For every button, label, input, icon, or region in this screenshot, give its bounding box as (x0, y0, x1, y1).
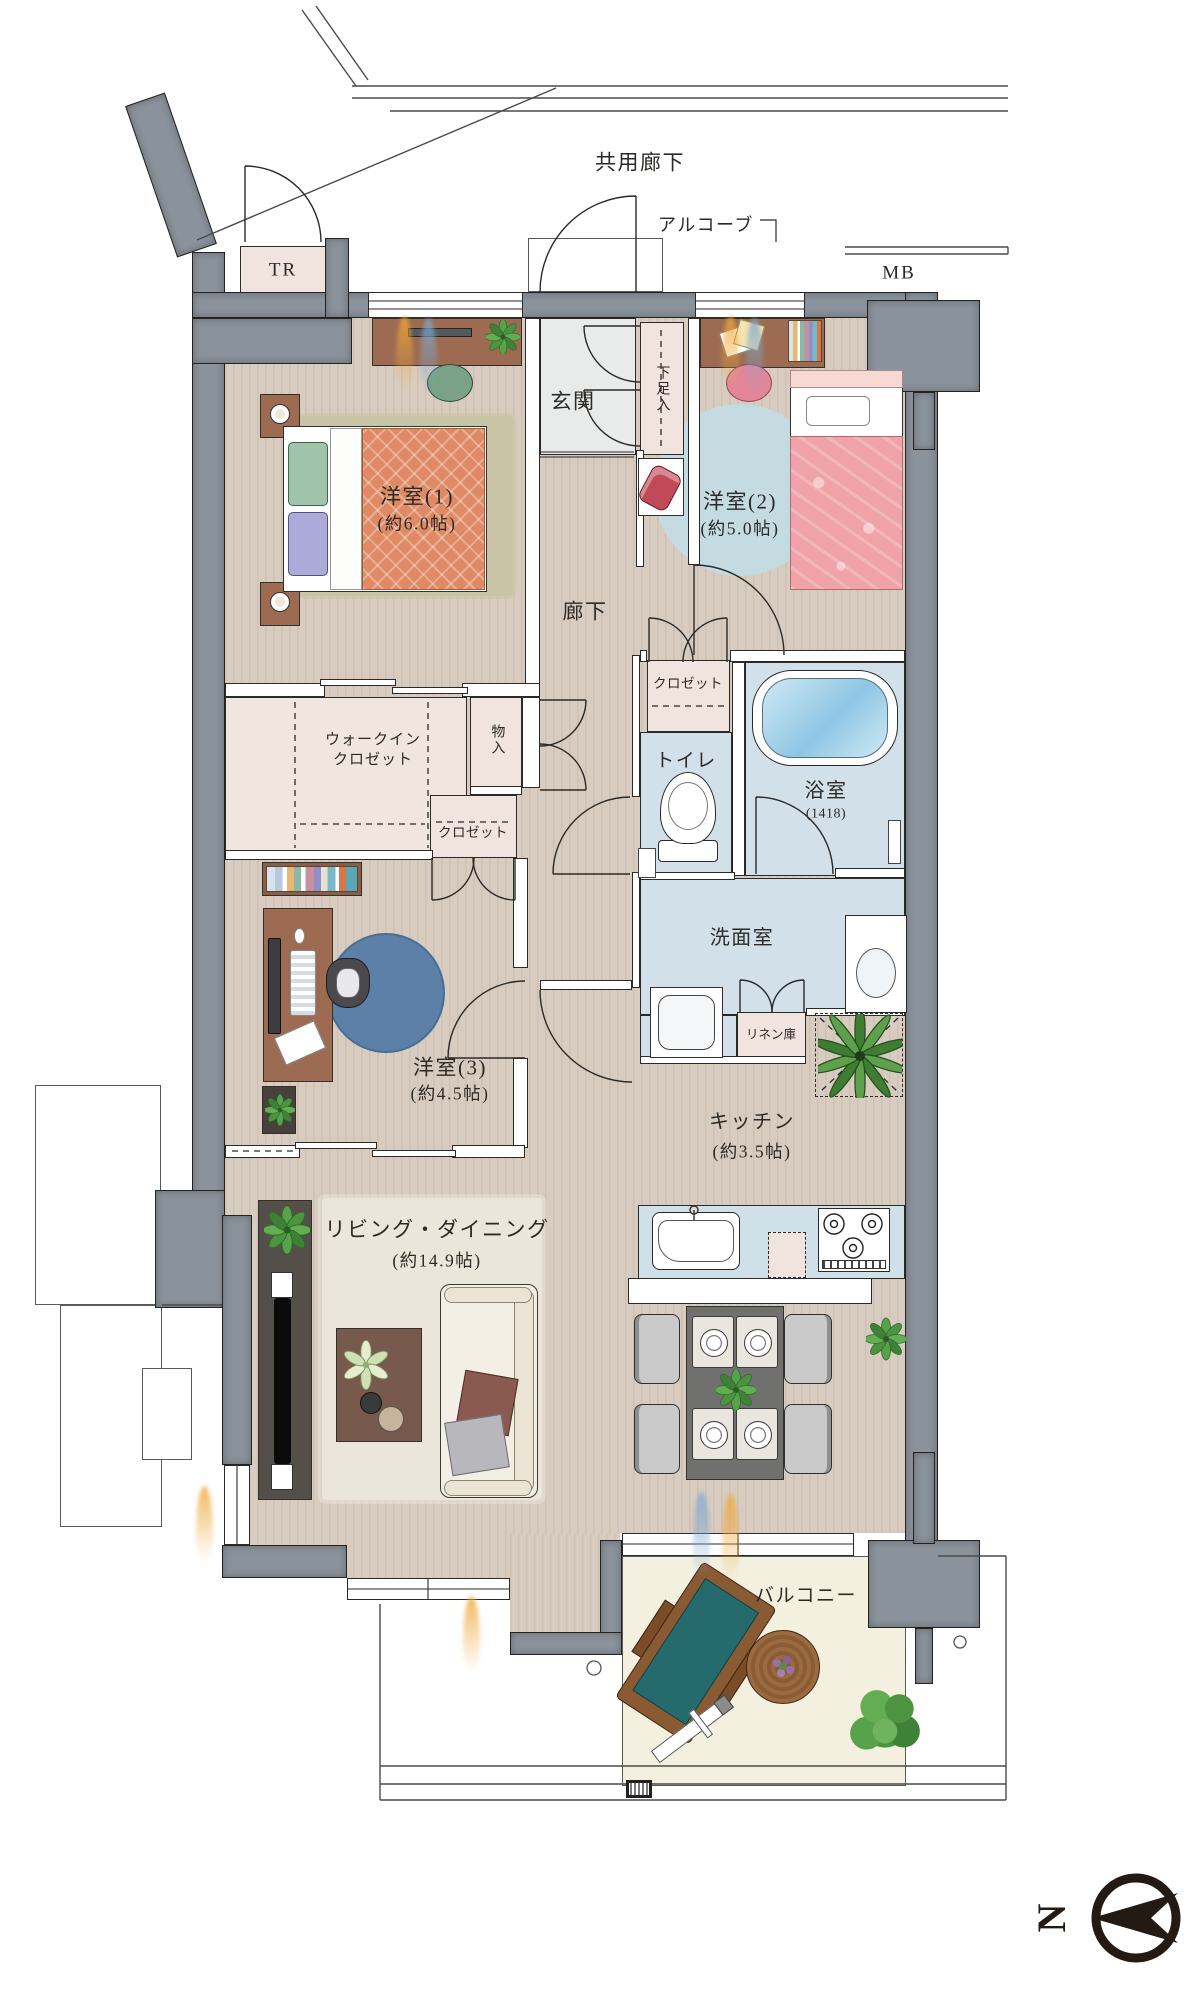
label-closet-room3: クロゼット (438, 825, 508, 841)
floor-plan: N 共用廊下 アルコーブ TR MB 玄関 下足入 洋室(1) (約6.0帖) … (0, 0, 1200, 2000)
faucet-icon (690, 1206, 698, 1220)
label-bathroom-size: (1418) (806, 807, 846, 824)
label-western-room-3-area: (約4.5帖) (410, 1084, 489, 1105)
label-washroom: 洗面室 (710, 926, 775, 950)
label-western-room-1: 洋室(1) (380, 484, 454, 509)
label-alcove: アルコーブ (658, 215, 754, 237)
label-kitchen: キッチン (709, 1110, 795, 1134)
label-hallway: 廊下 (563, 599, 608, 624)
label-wic-line2: クロゼット (333, 751, 413, 769)
label-living-dining-area: (約14.9帖) (392, 1251, 481, 1272)
label-closet-room2: クロゼット (653, 676, 723, 692)
label-trunk-room: TR (269, 260, 297, 283)
label-entrance: 玄関 (551, 389, 596, 414)
label-bathroom: 浴室 (805, 779, 848, 803)
label-linen-closet: リネン庫 (746, 1028, 796, 1043)
label-living-dining: リビング・ダイニング (325, 1217, 550, 1242)
label-western-room-2-area: (約5.0帖) (700, 519, 779, 540)
stove-burners (824, 1214, 882, 1258)
compass: N (1029, 1878, 1178, 1958)
label-kitchen-area: (約3.5帖) (712, 1142, 791, 1163)
label-shoe-cabinet: 下足入 (653, 365, 670, 413)
label-western-room-2: 洋室(2) (703, 489, 777, 514)
label-western-room-1-area: (約6.0帖) (377, 514, 456, 535)
linework-overlay: N (0, 0, 1200, 2000)
label-meter-box: MB (882, 263, 916, 286)
plants (263, 319, 920, 1749)
label-balcony: バルコニー (755, 1586, 857, 1609)
drain-icons (587, 1636, 966, 1675)
alcove-leader (760, 220, 776, 242)
compass-n-label: N (1029, 1903, 1074, 1932)
label-storage: 物入 (488, 724, 505, 756)
label-common-corridor: 共用廊下 (595, 150, 685, 175)
label-toilet: トイレ (655, 751, 717, 774)
label-western-room-3: 洋室(3) (413, 1055, 487, 1080)
balcony-railing (380, 1556, 1006, 1800)
label-wic-line1: ウォークイン (325, 731, 421, 749)
